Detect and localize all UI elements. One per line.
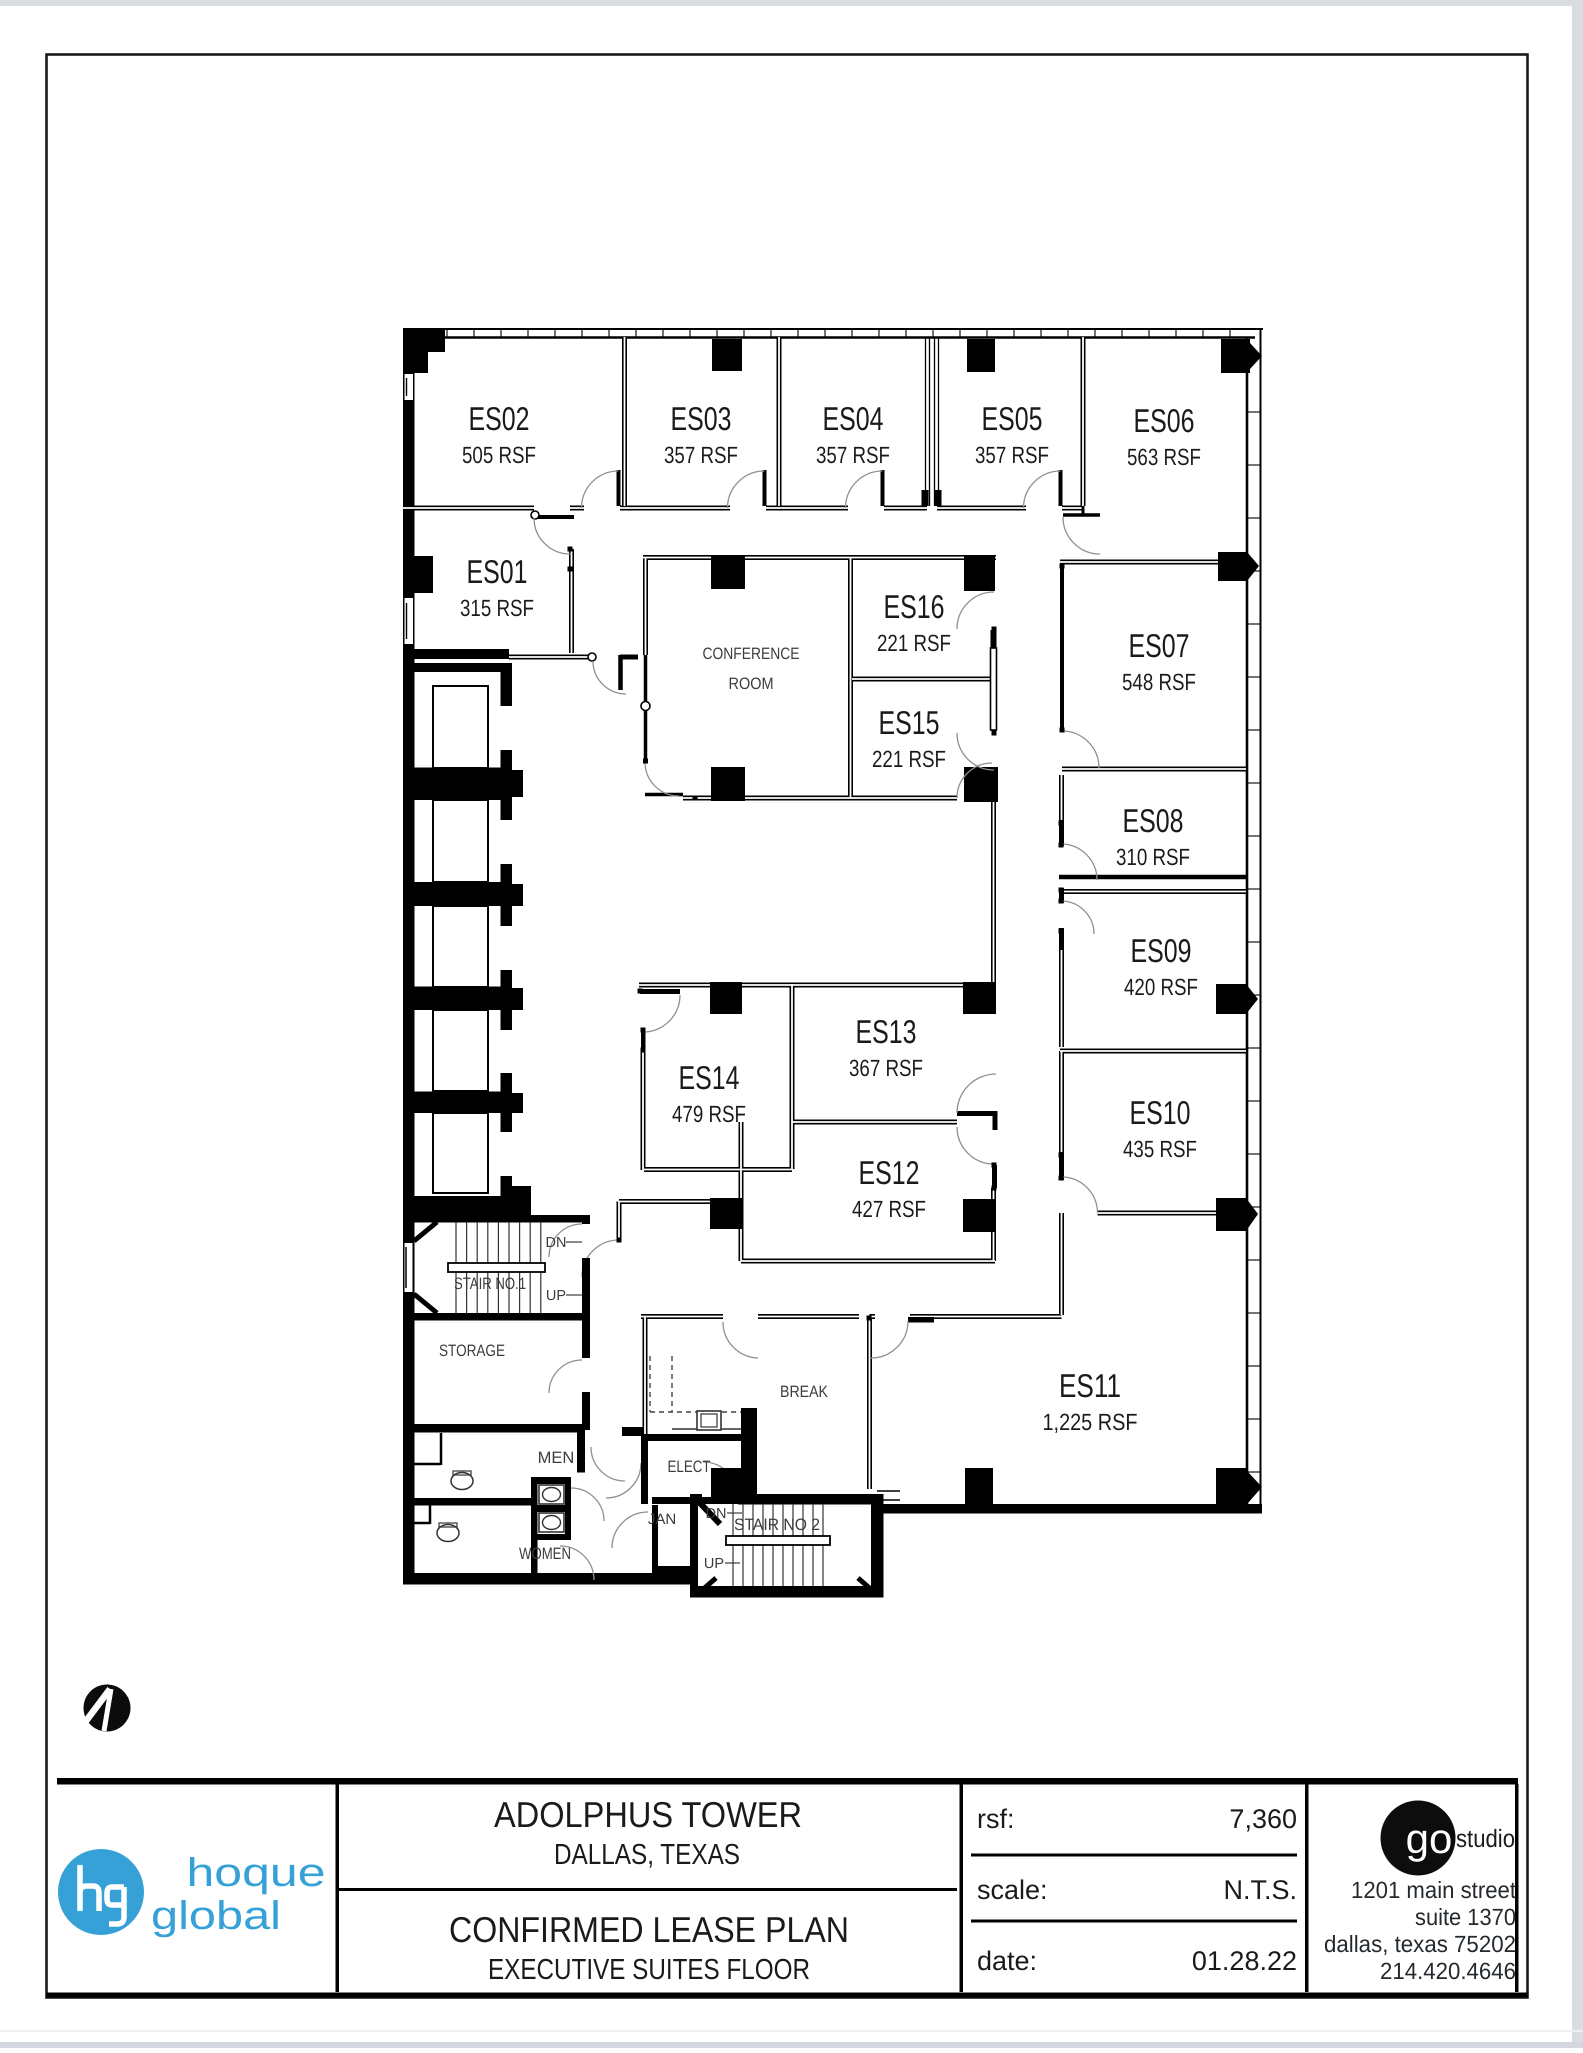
svg-text:ES11: ES11 [1059, 1367, 1121, 1404]
svg-text:studio: studio [1456, 1825, 1515, 1853]
svg-text:ES03: ES03 [671, 400, 732, 437]
svg-text:ES01: ES01 [467, 553, 528, 590]
svg-text:479 RSF: 479 RSF [672, 1101, 746, 1127]
svg-text:ES13: ES13 [856, 1013, 917, 1050]
svg-text:ELECT: ELECT [668, 1458, 711, 1476]
svg-text:563 RSF: 563 RSF [1127, 444, 1201, 470]
svg-text:EXECUTIVE SUITES FLOOR: EXECUTIVE SUITES FLOOR [488, 1954, 810, 1986]
svg-text:dallas, texas 75202: dallas, texas 75202 [1324, 1931, 1516, 1957]
svg-text:ES08: ES08 [1123, 802, 1184, 839]
svg-text:ES12: ES12 [859, 1154, 920, 1191]
svg-text:BREAK: BREAK [780, 1383, 828, 1401]
svg-text:ES09: ES09 [1131, 932, 1192, 969]
svg-text:1201 main street: 1201 main street [1351, 1877, 1516, 1903]
svg-text:UP: UP [546, 1288, 566, 1304]
svg-text:CONFIRMED LEASE PLAN: CONFIRMED LEASE PLAN [449, 1909, 849, 1950]
svg-text:scale:: scale: [977, 1875, 1048, 1905]
svg-text:ES06: ES06 [1134, 402, 1195, 439]
svg-text:ADOLPHUS TOWER: ADOLPHUS TOWER [494, 1794, 802, 1835]
svg-text:ES07: ES07 [1129, 627, 1190, 664]
svg-text:420 RSF: 420 RSF [1124, 974, 1198, 1000]
svg-text:427 RSF: 427 RSF [852, 1196, 926, 1222]
svg-text:STAIR NO.1: STAIR NO.1 [454, 1275, 526, 1293]
svg-text:DALLAS, TEXAS: DALLAS, TEXAS [554, 1839, 740, 1871]
svg-text:1,225 RSF: 1,225 RSF [1043, 1409, 1138, 1435]
svg-text:STAIR NO 2: STAIR NO 2 [734, 1516, 820, 1534]
svg-text:MEN: MEN [538, 1449, 575, 1467]
svg-text:310 RSF: 310 RSF [1116, 844, 1190, 870]
svg-text:N.T.S.: N.T.S. [1223, 1875, 1297, 1905]
svg-text:rsf:: rsf: [977, 1804, 1015, 1834]
svg-text:357 RSF: 357 RSF [816, 442, 890, 468]
svg-text:ES14: ES14 [679, 1059, 740, 1096]
svg-text:CONFERENCE: CONFERENCE [703, 645, 800, 663]
svg-text:ES02: ES02 [469, 400, 530, 437]
svg-text:date:: date: [977, 1946, 1037, 1976]
svg-text:UP: UP [704, 1556, 724, 1572]
svg-text:435 RSF: 435 RSF [1123, 1136, 1197, 1162]
svg-text:221 RSF: 221 RSF [877, 630, 951, 656]
svg-text:315 RSF: 315 RSF [460, 595, 534, 621]
svg-text:DN: DN [546, 1235, 567, 1251]
svg-text:ES16: ES16 [884, 588, 945, 625]
svg-text:hoque: hoque [187, 1851, 326, 1895]
svg-text:214.420.4646: 214.420.4646 [1380, 1958, 1516, 1984]
svg-text:STORAGE: STORAGE [439, 1342, 505, 1360]
svg-text:548 RSF: 548 RSF [1122, 669, 1196, 695]
svg-text:ROOM: ROOM [729, 675, 774, 693]
svg-text:ES15: ES15 [879, 704, 940, 741]
svg-text:221 RSF: 221 RSF [872, 746, 946, 772]
svg-text:DN: DN [706, 1506, 727, 1522]
svg-text:357 RSF: 357 RSF [975, 442, 1049, 468]
svg-text:ES10: ES10 [1130, 1094, 1191, 1131]
svg-text:505 RSF: 505 RSF [462, 442, 536, 468]
svg-text:go: go [1406, 1815, 1453, 1862]
svg-text:357 RSF: 357 RSF [664, 442, 738, 468]
svg-text:367 RSF: 367 RSF [849, 1055, 923, 1081]
svg-text:7,360: 7,360 [1229, 1804, 1297, 1834]
svg-text:ES04: ES04 [823, 400, 884, 437]
svg-text:suite 1370: suite 1370 [1415, 1904, 1516, 1930]
svg-text:01.28.22: 01.28.22 [1192, 1946, 1297, 1976]
svg-text:ES05: ES05 [982, 400, 1043, 437]
svg-text:global: global [151, 1894, 281, 1938]
svg-text:JAN: JAN [648, 1511, 676, 1528]
svg-text:WOMEN: WOMEN [519, 1545, 571, 1563]
